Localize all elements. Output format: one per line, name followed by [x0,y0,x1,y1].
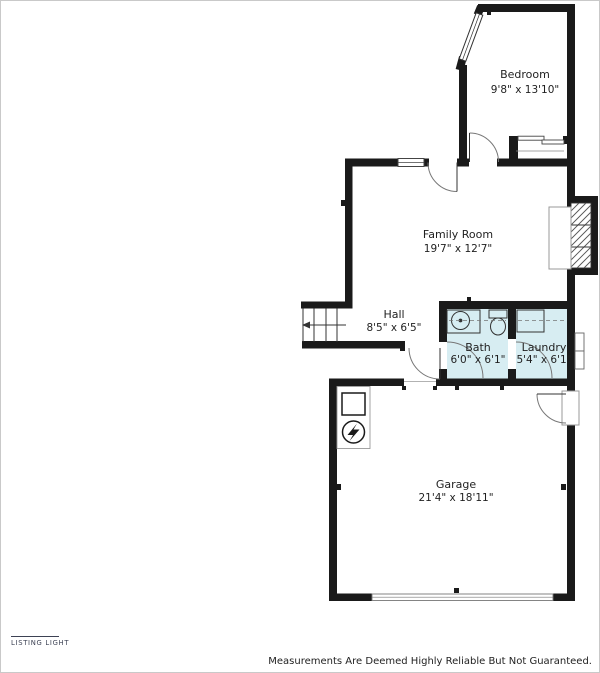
family-room-window [398,159,424,167]
room-dims-bedroom: 9'8" x 13'10" [491,84,559,96]
family-room-door-arc [428,163,457,192]
wall-segment [508,301,516,339]
room-dims-laundry: 5'4" x 6'1" [516,354,571,366]
sliding-door-panel [542,140,564,144]
garage-side-door [537,391,579,425]
room-label-family-room: Family Room [423,228,493,241]
room-dims-hall: 8'5" x 6'5" [366,322,421,334]
footer: LISTING LIGHT Measurements Are Deemed Hi… [11,637,592,668]
wall-segment [345,159,398,167]
bedroom-diagonal-window [459,13,483,61]
wall-segment [509,136,518,159]
tick [467,297,471,301]
wall-segment [459,65,467,166]
room-dims-family-room: 19'7" x 12'7" [424,243,492,255]
furnace-icon [342,393,365,415]
room-label-laundry: Laundry [522,341,567,354]
wall-segment [567,425,575,601]
wall-segment [345,159,353,309]
tick [433,386,437,390]
wall-segment [329,379,337,602]
wall-segment [302,341,405,349]
fireplace-hearth [549,207,571,269]
tick [454,588,459,593]
window-pane [575,333,584,351]
garage-utilities [337,387,370,449]
floor-plan: Bedroom 9'8" x 13'10" Family Room 19'7" … [1,1,599,672]
tick [402,386,406,390]
disclaimer: Measurements Are Deemed Highly Reliable … [268,656,592,667]
tick [337,484,341,490]
room-label-bath: Bath [465,341,491,354]
laundry-window [575,333,584,369]
floor-plan-page: Bedroom 9'8" x 13'10" Family Room 19'7" … [0,0,600,673]
tick [561,484,566,490]
wall-segment [478,4,575,12]
wall-segment [439,301,575,309]
wall-segment [457,159,469,167]
room-label-bedroom: Bedroom [500,68,550,81]
tick [455,386,459,390]
wall-segment [436,379,574,387]
wall-segment [553,594,575,602]
tick [341,200,345,206]
door-frame [562,391,579,425]
wall-segment [508,369,516,379]
wall-segment [329,594,372,602]
tick [500,386,504,390]
wall-segment [497,159,575,167]
lightning-bolt-icon [348,424,360,442]
brand-logo: LISTING LIGHT [11,639,69,647]
wall-segment [301,302,352,309]
tick [400,346,405,351]
room-label-hall: Hall [383,308,404,321]
room-dims-garage: 21'4" x 18'11" [418,492,493,504]
window-pane [575,351,584,369]
room-label-garage: Garage [436,478,477,491]
bedroom-closet [516,136,564,151]
sliding-door-panel [518,136,544,140]
hall-door-arc [409,348,440,379]
garage-door [372,594,553,601]
window-centerline [463,14,480,60]
tick [487,12,491,15]
stairs [302,309,346,343]
bedroom-door-arc [470,133,499,162]
fireplace [549,196,598,275]
wall-segment [329,379,404,387]
room-dims-bath: 6'0" x 6'1" [450,354,505,366]
wall-segment [439,301,447,342]
